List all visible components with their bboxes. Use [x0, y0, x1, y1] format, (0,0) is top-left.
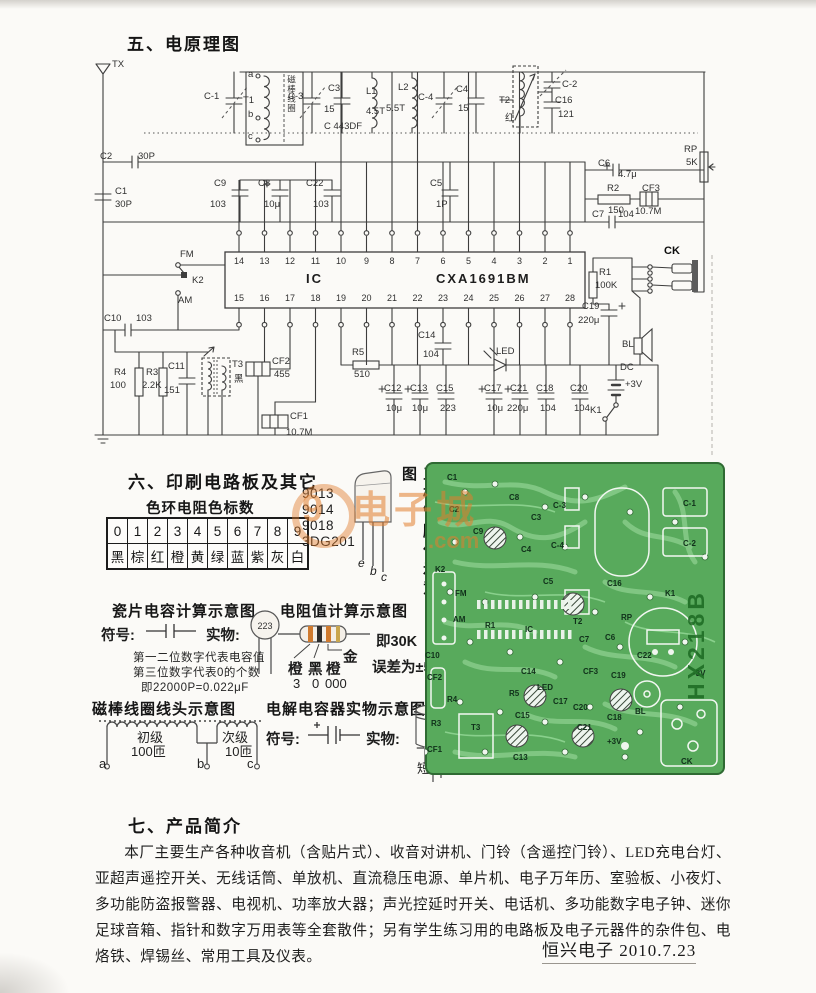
- color-name-6: 蓝: [228, 544, 248, 568]
- ic-pin-bottom-20: 20: [359, 294, 375, 303]
- ic-pin-top-2: 2: [537, 257, 553, 266]
- ic-pin-bottom-16: 16: [257, 294, 273, 303]
- pcb-label-41: C10: [425, 652, 440, 660]
- pcb-label-14: K1: [665, 590, 675, 598]
- pcb-label-15: R1: [485, 622, 495, 630]
- pcb-label-27: C21: [577, 724, 592, 732]
- pcb-label-39: C13: [513, 754, 528, 762]
- pcb-label-43: C8: [509, 494, 519, 502]
- pcb-label-16: IC: [525, 626, 533, 634]
- pcb-photo: C1C2C9K2FMAMC3C4C5C-3C-4C-1C-2C16K1R1ICT…: [425, 462, 725, 775]
- transistor-model-9014: 9014: [302, 502, 334, 517]
- terminal-b: b: [197, 756, 204, 771]
- scanned-manual-page: 五、电原理图: [0, 0, 816, 993]
- electrolytic-symbol-label: 符号:: [266, 728, 300, 749]
- color-code-title: 色环电阻色标数: [146, 497, 255, 518]
- ic-pin-top-4: 4: [486, 257, 502, 266]
- pcb-label-4: FM: [455, 590, 467, 598]
- ic-pin-bottom-28: 28: [562, 294, 578, 303]
- pcb-label-9: C-3: [553, 502, 566, 510]
- pcb-label-26: C20: [573, 704, 588, 712]
- section5-title: 五、电原理图: [127, 30, 241, 55]
- ic-pin-bottom-19: 19: [333, 294, 349, 303]
- ic-pin-bottom-22: 22: [410, 294, 426, 303]
- section7-title: 七、产品简介: [128, 812, 242, 837]
- pcb-label-34: C14: [521, 668, 536, 676]
- color-name-2: 红: [148, 544, 168, 568]
- transistor-model-3dg201: 3DG201: [302, 534, 355, 549]
- digit1: 3: [293, 676, 300, 691]
- pcb-label-18: C7: [579, 636, 589, 644]
- ic-pin-top-1: 1: [562, 257, 578, 266]
- section6-title: 六、印刷电路板及其它: [128, 468, 318, 493]
- color-name-1: 棕: [128, 544, 148, 568]
- publisher-date-footer: 恒兴电子 2010.7.23: [542, 936, 696, 964]
- electrolytic-symbol-icon: [308, 720, 364, 748]
- color-digit-4: 4: [188, 519, 208, 544]
- ceramic-cap-title: 瓷片电容计算示意图: [112, 600, 256, 621]
- pcb-label-40: CK: [681, 758, 693, 766]
- ic-pin-bottom-27: 27: [537, 294, 553, 303]
- transistor-model-9018: 9018: [302, 518, 334, 533]
- electrolytic-title: 电解电容器实物示意图: [266, 698, 426, 719]
- pcb-label-36: R4: [447, 696, 457, 704]
- pcb-label-37: R3: [431, 720, 441, 728]
- ic-pin-top-14: 14: [231, 257, 247, 266]
- pcb-label-7: C4: [521, 546, 531, 554]
- ic-pin-top-11: 11: [308, 257, 324, 266]
- color-name-0: 黑: [108, 544, 128, 568]
- ic-pin-bottom-25: 25: [486, 294, 502, 303]
- svg-text:223: 223: [257, 621, 272, 631]
- pin-label-e: e: [358, 556, 365, 570]
- pcb-label-2: C9: [473, 528, 483, 536]
- ic-pin-bottom-26: 26: [512, 294, 528, 303]
- pcb-label-24: LED: [537, 684, 553, 692]
- pcb-label-12: C-2: [683, 540, 696, 548]
- minus-sign: −: [416, 740, 425, 757]
- ceramic-note-1: 第一二位数字代表电容值: [133, 649, 265, 665]
- ic-pin-bottom-23: 23: [435, 294, 451, 303]
- ic-pin-top-12: 12: [282, 257, 298, 266]
- resistor-result: 即30K: [376, 630, 417, 651]
- ic-pin-numbers: 1413121110987654321151617181920212223242…: [88, 60, 748, 460]
- ic-pin-top-3: 3: [512, 257, 528, 266]
- color-digit-8: 8: [268, 519, 288, 544]
- pcb-label-0: C1: [447, 474, 457, 482]
- pcb-label-8: C5: [543, 578, 553, 586]
- color-table-digit-row: 0123456789: [108, 519, 307, 544]
- ceramic-note-3: 即22000P=0.022μF: [141, 679, 249, 695]
- ic-pin-top-10: 10: [333, 257, 349, 266]
- pcb-label-35: CF2: [427, 674, 442, 682]
- pin-label-b: b: [370, 564, 377, 578]
- pcb-label-20: RP: [621, 614, 632, 622]
- ic-pin-top-7: 7: [410, 257, 426, 266]
- capacitor-symbol-icon: [146, 622, 198, 640]
- ic-pin-bottom-15: 15: [231, 294, 247, 303]
- pin-label-c: c: [381, 570, 387, 584]
- color-name-4: 黄: [188, 544, 208, 568]
- ic-pin-top-8: 8: [384, 257, 400, 266]
- color-digit-2: 2: [148, 519, 168, 544]
- pcb-label-3: K2: [435, 566, 445, 574]
- gold-band-label: 金: [343, 646, 358, 667]
- pcb-label-13: C16: [607, 580, 622, 588]
- color-table-color-row: 黑棕红橙黄绿蓝紫灰白: [108, 544, 307, 568]
- color-digit-5: 5: [208, 519, 228, 544]
- digit2: 0: [312, 676, 319, 691]
- color-name-8: 灰: [268, 544, 288, 568]
- color-digit-6: 6: [228, 519, 248, 544]
- ceramic-real-label: 实物:: [206, 624, 240, 645]
- pcb-label-11: C-1: [683, 500, 696, 508]
- ic-pin-bottom-21: 21: [384, 294, 400, 303]
- terminal-c: c: [247, 756, 254, 771]
- resistor-color-table: 0123456789 黑棕红橙黄绿蓝紫灰白: [106, 517, 309, 570]
- pcb-label-22: CF3: [583, 668, 598, 676]
- pcb-silkscreen-labels: C1C2C9K2FMAMC3C4C5C-3C-4C-1C-2C16K1R1ICT…: [425, 462, 725, 775]
- ic-pin-bottom-18: 18: [308, 294, 324, 303]
- pcb-label-29: BL: [635, 708, 646, 716]
- ic-pin-top-13: 13: [257, 257, 273, 266]
- pcb-label-6: C3: [531, 514, 541, 522]
- circuit-schematic: TXC-1T1abc磁棒线圈C-3C315L14.5TL25.5TC-4C415…: [88, 60, 748, 460]
- color-name-3: 橙: [168, 544, 188, 568]
- digit3: 000: [325, 676, 347, 691]
- color-digit-3: 3: [168, 519, 188, 544]
- pcb-label-38: T3: [471, 724, 480, 732]
- ic-pin-top-9: 9: [359, 257, 375, 266]
- pcb-label-42: CF1: [427, 746, 442, 754]
- color-digit-7: 7: [248, 519, 268, 544]
- ic-pin-top-6: 6: [435, 257, 451, 266]
- terminal-a: a: [99, 756, 106, 771]
- primary-turns: 100匝: [131, 741, 166, 760]
- pcb-label-33: C15: [515, 712, 530, 720]
- pcb-label-19: C6: [605, 634, 615, 642]
- color-name-7: 紫: [248, 544, 268, 568]
- ceramic-note-2: 第三位数字代表0的个数: [133, 664, 260, 680]
- ic-pin-bottom-17: 17: [282, 294, 298, 303]
- pcb-label-23: C19: [611, 672, 626, 680]
- pcb-label-17: T2: [573, 618, 582, 626]
- pcb-label-30: +3V: [607, 738, 621, 746]
- transistor-model-9013: 9013: [302, 486, 334, 501]
- color-digit-0: 0: [108, 519, 128, 544]
- pcb-label-32: R5: [509, 690, 519, 698]
- ic-pin-top-5: 5: [461, 257, 477, 266]
- pcb-label-10: C-4: [551, 542, 564, 550]
- pcb-model-number-vertical: HX218B: [683, 589, 710, 700]
- scan-edge-artifact: [0, 0, 816, 9]
- pcb-label-5: AM: [453, 616, 465, 624]
- electrolytic-real-label: 实物:: [366, 728, 400, 749]
- ceramic-symbol-label: 符号:: [101, 624, 135, 645]
- color-name-5: 绿: [208, 544, 228, 568]
- pcb-label-25: C17: [553, 698, 568, 706]
- color-digit-1: 1: [128, 519, 148, 544]
- scan-corner-shadow: [0, 952, 70, 993]
- pcb-label-1: C2: [449, 506, 459, 514]
- ic-pin-bottom-24: 24: [461, 294, 477, 303]
- pcb-label-21: C22: [637, 652, 652, 660]
- pcb-label-28: C18: [607, 714, 622, 722]
